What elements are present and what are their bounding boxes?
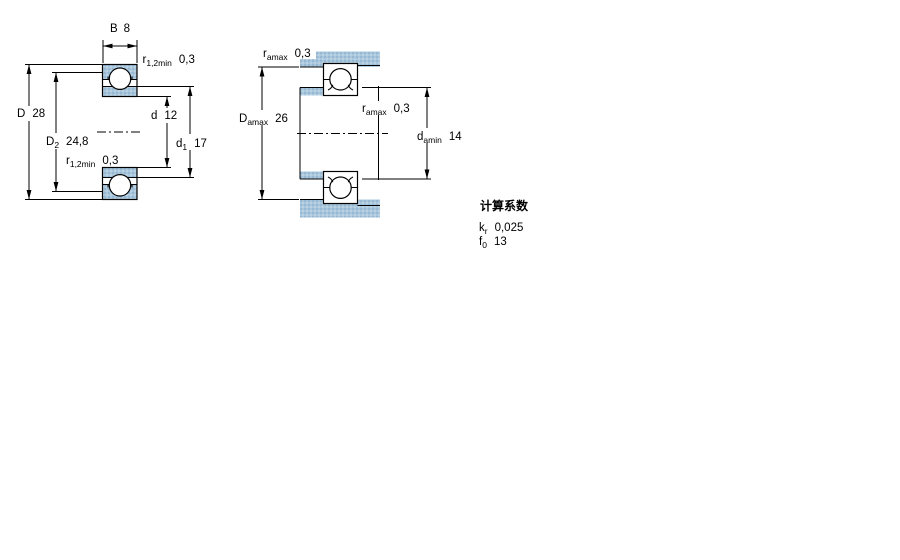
- dim-label-d: d12: [151, 110, 177, 122]
- page-background: [0, 0, 900, 560]
- shaft-shoulder-top-section: [300, 88, 324, 96]
- dim-label-D2: D224,8: [46, 136, 88, 150]
- bearing-ball-top: [109, 68, 130, 89]
- bearing-ball-bottom: [330, 177, 351, 198]
- calculation-factors-title: 计算系数: [480, 198, 529, 213]
- shaft-shoulder-bottom-section: [300, 172, 324, 180]
- drawing-svg: B8 r1,2min0,3 D28 D224,8 r1,2min0,3 d12 …: [0, 0, 900, 560]
- bearing-ball-top: [330, 69, 351, 90]
- bearing-technical-drawing: B8 r1,2min0,3 D28 D224,8 r1,2min0,3 d12 …: [0, 0, 900, 560]
- bearing-ball-bottom: [109, 175, 130, 196]
